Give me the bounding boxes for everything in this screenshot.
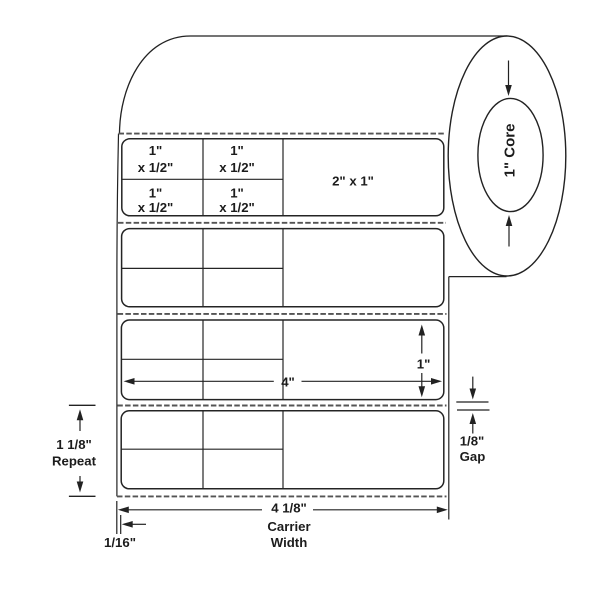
svg-text:1/16": 1/16" xyxy=(104,535,136,550)
svg-text:1": 1" xyxy=(230,186,244,201)
svg-text:1": 1" xyxy=(417,356,431,371)
svg-text:1" Core: 1" Core xyxy=(502,124,519,178)
svg-text:x 1/2": x 1/2" xyxy=(138,200,174,215)
svg-text:1": 1" xyxy=(149,186,163,201)
svg-text:4": 4" xyxy=(281,375,295,390)
svg-text:Gap: Gap xyxy=(460,449,486,464)
svg-text:1": 1" xyxy=(149,143,163,158)
svg-text:x 1/2": x 1/2" xyxy=(219,200,255,215)
svg-text:Carrier: Carrier xyxy=(267,519,310,534)
svg-text:x 1/2": x 1/2" xyxy=(219,160,255,175)
svg-text:1": 1" xyxy=(230,143,244,158)
svg-text:2" x 1": 2" x 1" xyxy=(332,173,374,188)
svg-text:Repeat: Repeat xyxy=(52,454,97,469)
svg-text:1 1/8": 1 1/8" xyxy=(56,437,92,452)
svg-text:x 1/2": x 1/2" xyxy=(138,160,174,175)
svg-text:Width: Width xyxy=(271,535,308,550)
svg-text:4 1/8": 4 1/8" xyxy=(271,500,307,515)
svg-text:1/8": 1/8" xyxy=(460,433,485,448)
